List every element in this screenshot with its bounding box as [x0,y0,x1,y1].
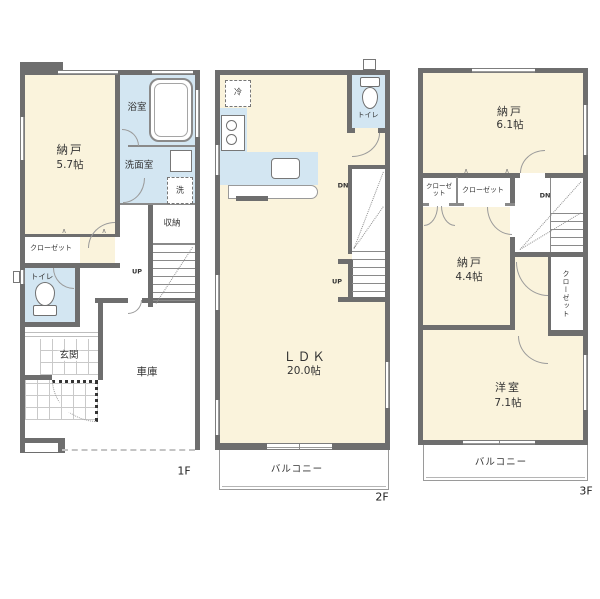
room-size-nando-1f: 5.7帖 [56,160,83,172]
wall [25,375,52,380]
partition [456,177,458,203]
toilet-tank [33,305,57,316]
window [215,400,220,435]
wall [215,443,267,450]
window [58,70,118,75]
stairs-dn-label: DN [338,182,349,189]
room-size-ldk: 20.0帖 [287,366,321,378]
door-swing-icon: ∧ [101,227,106,235]
wall [25,322,80,327]
room-label-closet-mid: クローゼット [462,187,504,195]
room-label-bath: 浴室 [127,103,146,113]
wall [20,284,25,438]
wall-notch [25,443,58,452]
room-size-nando-small: 4.4帖 [455,272,482,284]
wall [118,70,152,75]
bathtub [149,78,193,142]
room-label-nando-large: 納戸 [497,106,523,118]
washer-label: 洗 [176,187,184,196]
wall [418,73,423,445]
garage-opening-dashed [62,449,195,451]
wall [347,75,352,128]
stove-burner [226,120,237,131]
stove-burner [226,134,237,145]
window [215,275,220,310]
stairs-dn-label: DN [540,192,551,199]
floor-tag-2f: 2F [375,491,388,504]
entrance-step-line [25,332,98,333]
window-divider [499,441,500,444]
wall [115,75,120,237]
wall [348,165,390,169]
window [385,362,390,408]
door-swing-icon: ∧ [504,167,509,175]
balcony-label-2f: バルコニー [271,465,323,475]
floor-tag-3f: 3F [579,485,592,498]
wall [98,303,103,380]
wall [20,62,63,70]
floorplan-canvas: ∧ ∧ 納戸 5.7帖 浴室 洗面室 洗 収納 クローゼット トイレ UP 玄関… [0,0,600,599]
wall [348,169,352,254]
room-label-closet-small: クローゼット [424,183,454,197]
room-label-yoshitsu: 洋室 [495,382,521,394]
room-label-nando-small: 納戸 [457,257,483,269]
window-frame [13,271,20,283]
wall [195,75,200,90]
wall [515,252,588,257]
partition [505,203,515,206]
stairs-2f [352,252,385,298]
wall [20,160,25,270]
room-label-nando-1f: 納戸 [57,144,84,157]
window-divider [299,444,300,449]
wall [20,75,25,117]
wall [75,268,80,322]
window [583,105,588,155]
room-label-entrance: 玄関 [57,351,80,361]
wall [236,196,268,201]
wall [583,73,588,105]
wall [510,237,515,330]
window [472,68,535,73]
room-label-washroom: 洗面室 [125,161,154,171]
window [20,117,25,160]
wall [215,75,220,145]
room-label-closet-1f: クローゼット [30,245,72,253]
wall [195,137,200,450]
toilet-window [363,59,376,70]
window [215,145,220,175]
room-size-nando-large: 6.1帖 [496,120,523,132]
wall [423,325,515,330]
wall [535,68,588,73]
door-swing-icon: ∧ [61,227,66,235]
wall [510,173,515,205]
room-label-storage: 収納 [163,219,180,228]
wall [20,70,58,75]
wall [332,443,390,450]
stairs-up-label: UP [132,268,142,275]
wall [548,257,551,330]
wall [548,330,588,336]
window [583,355,588,410]
stairs-up-label: UP [332,278,342,285]
window [152,70,193,75]
window [20,270,25,284]
wall [385,75,390,362]
fridge-label: 冷 [234,89,242,98]
wall [215,175,220,275]
room-label-garage: 車庫 [137,367,158,379]
door-swing-icon: ∧ [463,167,468,175]
room-label-ldk: ＬＤＫ [283,350,327,364]
wall [215,310,220,400]
wall [545,173,588,178]
kitchen-sink [271,158,300,179]
toilet-tank [360,77,380,87]
room-size-yoshitsu: 7.1帖 [494,398,521,410]
room-label-toilet-2f: トイレ [358,112,379,120]
room-label-closet-side: クローゼット [561,270,571,318]
room-label-toilet-1f: トイレ [31,273,54,281]
entrance-step-line [25,336,98,337]
door-swing-arc [128,300,142,314]
floor-tag-1f: 1F [177,465,190,478]
wall [418,68,472,73]
washbasin [170,150,192,172]
window [195,90,200,137]
balcony-label-3f: バルコニー [475,458,527,468]
wall [215,70,390,75]
